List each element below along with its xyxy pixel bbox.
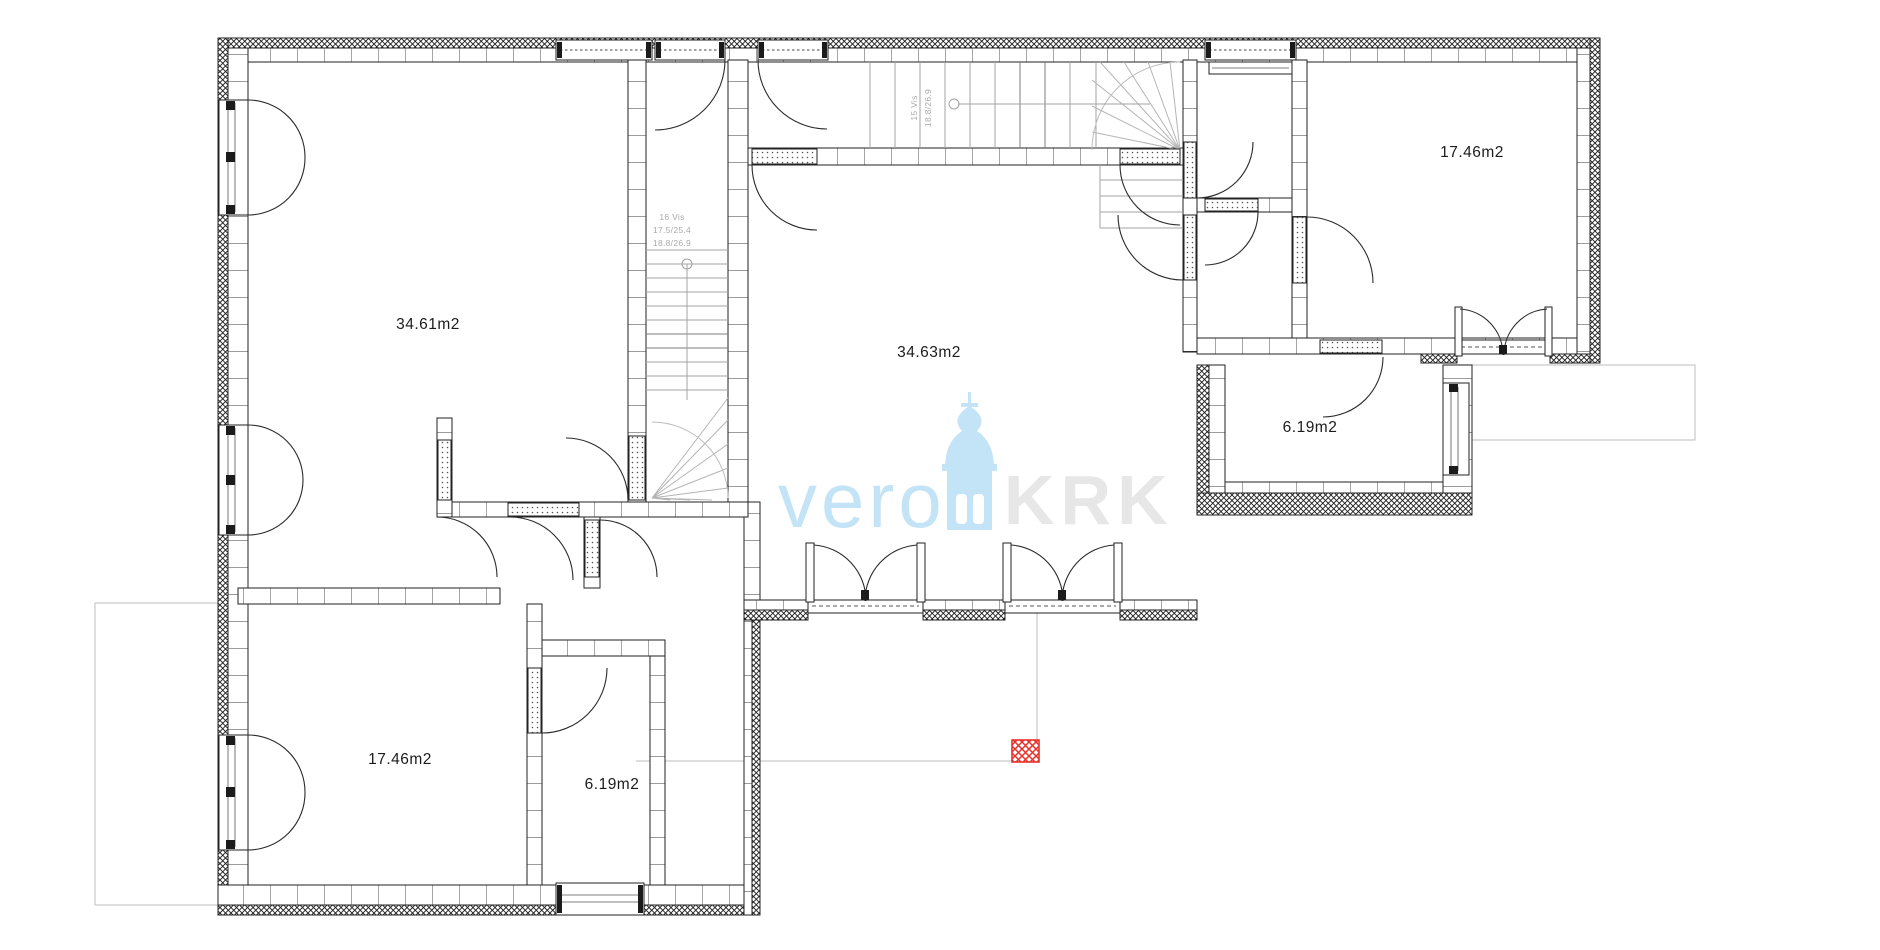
door-central-east <box>1118 215 1196 280</box>
wall-central-bottom-hatch-3 <box>1120 610 1197 620</box>
staircase-top: 15 Vis 18.8/26.9 <box>870 62 1183 228</box>
door-winder-exit <box>1120 149 1180 225</box>
watermark-word-right: KRK <box>1004 461 1174 539</box>
wall-corridor-bottom <box>437 502 748 517</box>
stair-left-line3: 18.8/26.9 <box>653 238 691 248</box>
door-619bl <box>528 668 607 733</box>
wall-bottom <box>218 885 760 905</box>
stair-left-line1: 16 Vis <box>659 212 684 222</box>
watermark-word-left: vero <box>778 456 946 544</box>
wall-619r-bottom-hatch <box>1197 493 1472 515</box>
door-smallrooms-divider <box>1205 199 1258 265</box>
room-label-c: 17.46m2 <box>1440 144 1504 161</box>
terrace-center <box>636 612 1037 761</box>
terrace-left <box>95 603 220 905</box>
watermark: vero KRK <box>778 392 1174 544</box>
room-label-d: 6.19m2 <box>1283 419 1338 436</box>
door-smallroom-1 <box>1184 142 1253 198</box>
stair-label-top: 15 Vis 18.8/26.9 <box>909 89 933 127</box>
room-label-b: 34.63m2 <box>897 344 961 361</box>
stair-winder-top <box>1092 62 1183 228</box>
door-understair-left <box>752 149 817 230</box>
stair-top-line2: 18.8/26.9 <box>923 89 933 127</box>
wall-619bl-top <box>542 640 665 656</box>
wall-central-bottom-hatch-1 <box>744 610 808 620</box>
wall-stair-right <box>728 60 748 517</box>
red-position-marker <box>1012 740 1039 762</box>
wall-top-hatch <box>218 38 1600 48</box>
wall-1746bl-top <box>238 588 500 604</box>
door-stair-to-room-a <box>566 436 645 500</box>
wall-rightwing-hatch-2 <box>1550 354 1592 363</box>
wall-619bl-right <box>650 656 665 885</box>
wall-wing-right-hatch <box>752 607 760 915</box>
wall-619bl-left <box>527 604 542 885</box>
window-left-1 <box>219 100 305 215</box>
wall-central-bottom-hatch-2 <box>923 610 1005 620</box>
room-label-a: 34.61m2 <box>396 316 460 333</box>
lighthouse-icon <box>942 392 997 530</box>
entry-door-left <box>655 40 725 130</box>
stair-winder-left <box>652 398 728 500</box>
window-top-2 <box>1205 40 1296 74</box>
stair-start-circle-top <box>949 99 959 109</box>
door-corridor-bottom <box>508 503 579 580</box>
staircase-left: 16 Vis 17.5/25.4 18.8/26.9 <box>646 212 728 500</box>
wall-smallrooms-right <box>1292 60 1307 338</box>
room-label-f: 6.19m2 <box>585 776 640 793</box>
stair-label-left: 16 Vis 17.5/25.4 18.8/26.9 <box>653 212 691 248</box>
room-label-e: 17.46m2 <box>368 751 432 768</box>
wall-619r-left <box>1209 365 1225 493</box>
french-door-central-2 <box>1003 543 1122 613</box>
wall-619r-bottom <box>1225 482 1443 493</box>
floor-plan: vero KRK <box>0 0 1880 950</box>
french-door-central-1 <box>806 543 925 613</box>
wall-right-hatch <box>1590 38 1600 363</box>
stair-left-line2: 17.5/25.4 <box>653 225 691 235</box>
stair-treads-top <box>870 62 1096 148</box>
window-left-2 <box>219 425 303 535</box>
door-to-1746r <box>1293 217 1373 283</box>
window-top-1 <box>556 40 652 60</box>
window-left-3 <box>219 735 305 850</box>
entry-door-right <box>758 40 828 129</box>
wall-right <box>1577 48 1590 354</box>
door-619r <box>1320 340 1383 417</box>
wall-central-right <box>1183 60 1197 352</box>
wall-top <box>218 48 1600 62</box>
wall-bottom-hatch <box>218 905 760 915</box>
wall-rightwing-hatch-1 <box>1421 354 1457 363</box>
stair-top-line1: 15 Vis <box>909 95 919 120</box>
door-vestibule <box>585 520 657 577</box>
terrace-right <box>1458 365 1695 440</box>
window-right-619 <box>1443 383 1469 475</box>
french-door-rightwing <box>1455 307 1552 356</box>
window-bottom <box>556 883 644 915</box>
